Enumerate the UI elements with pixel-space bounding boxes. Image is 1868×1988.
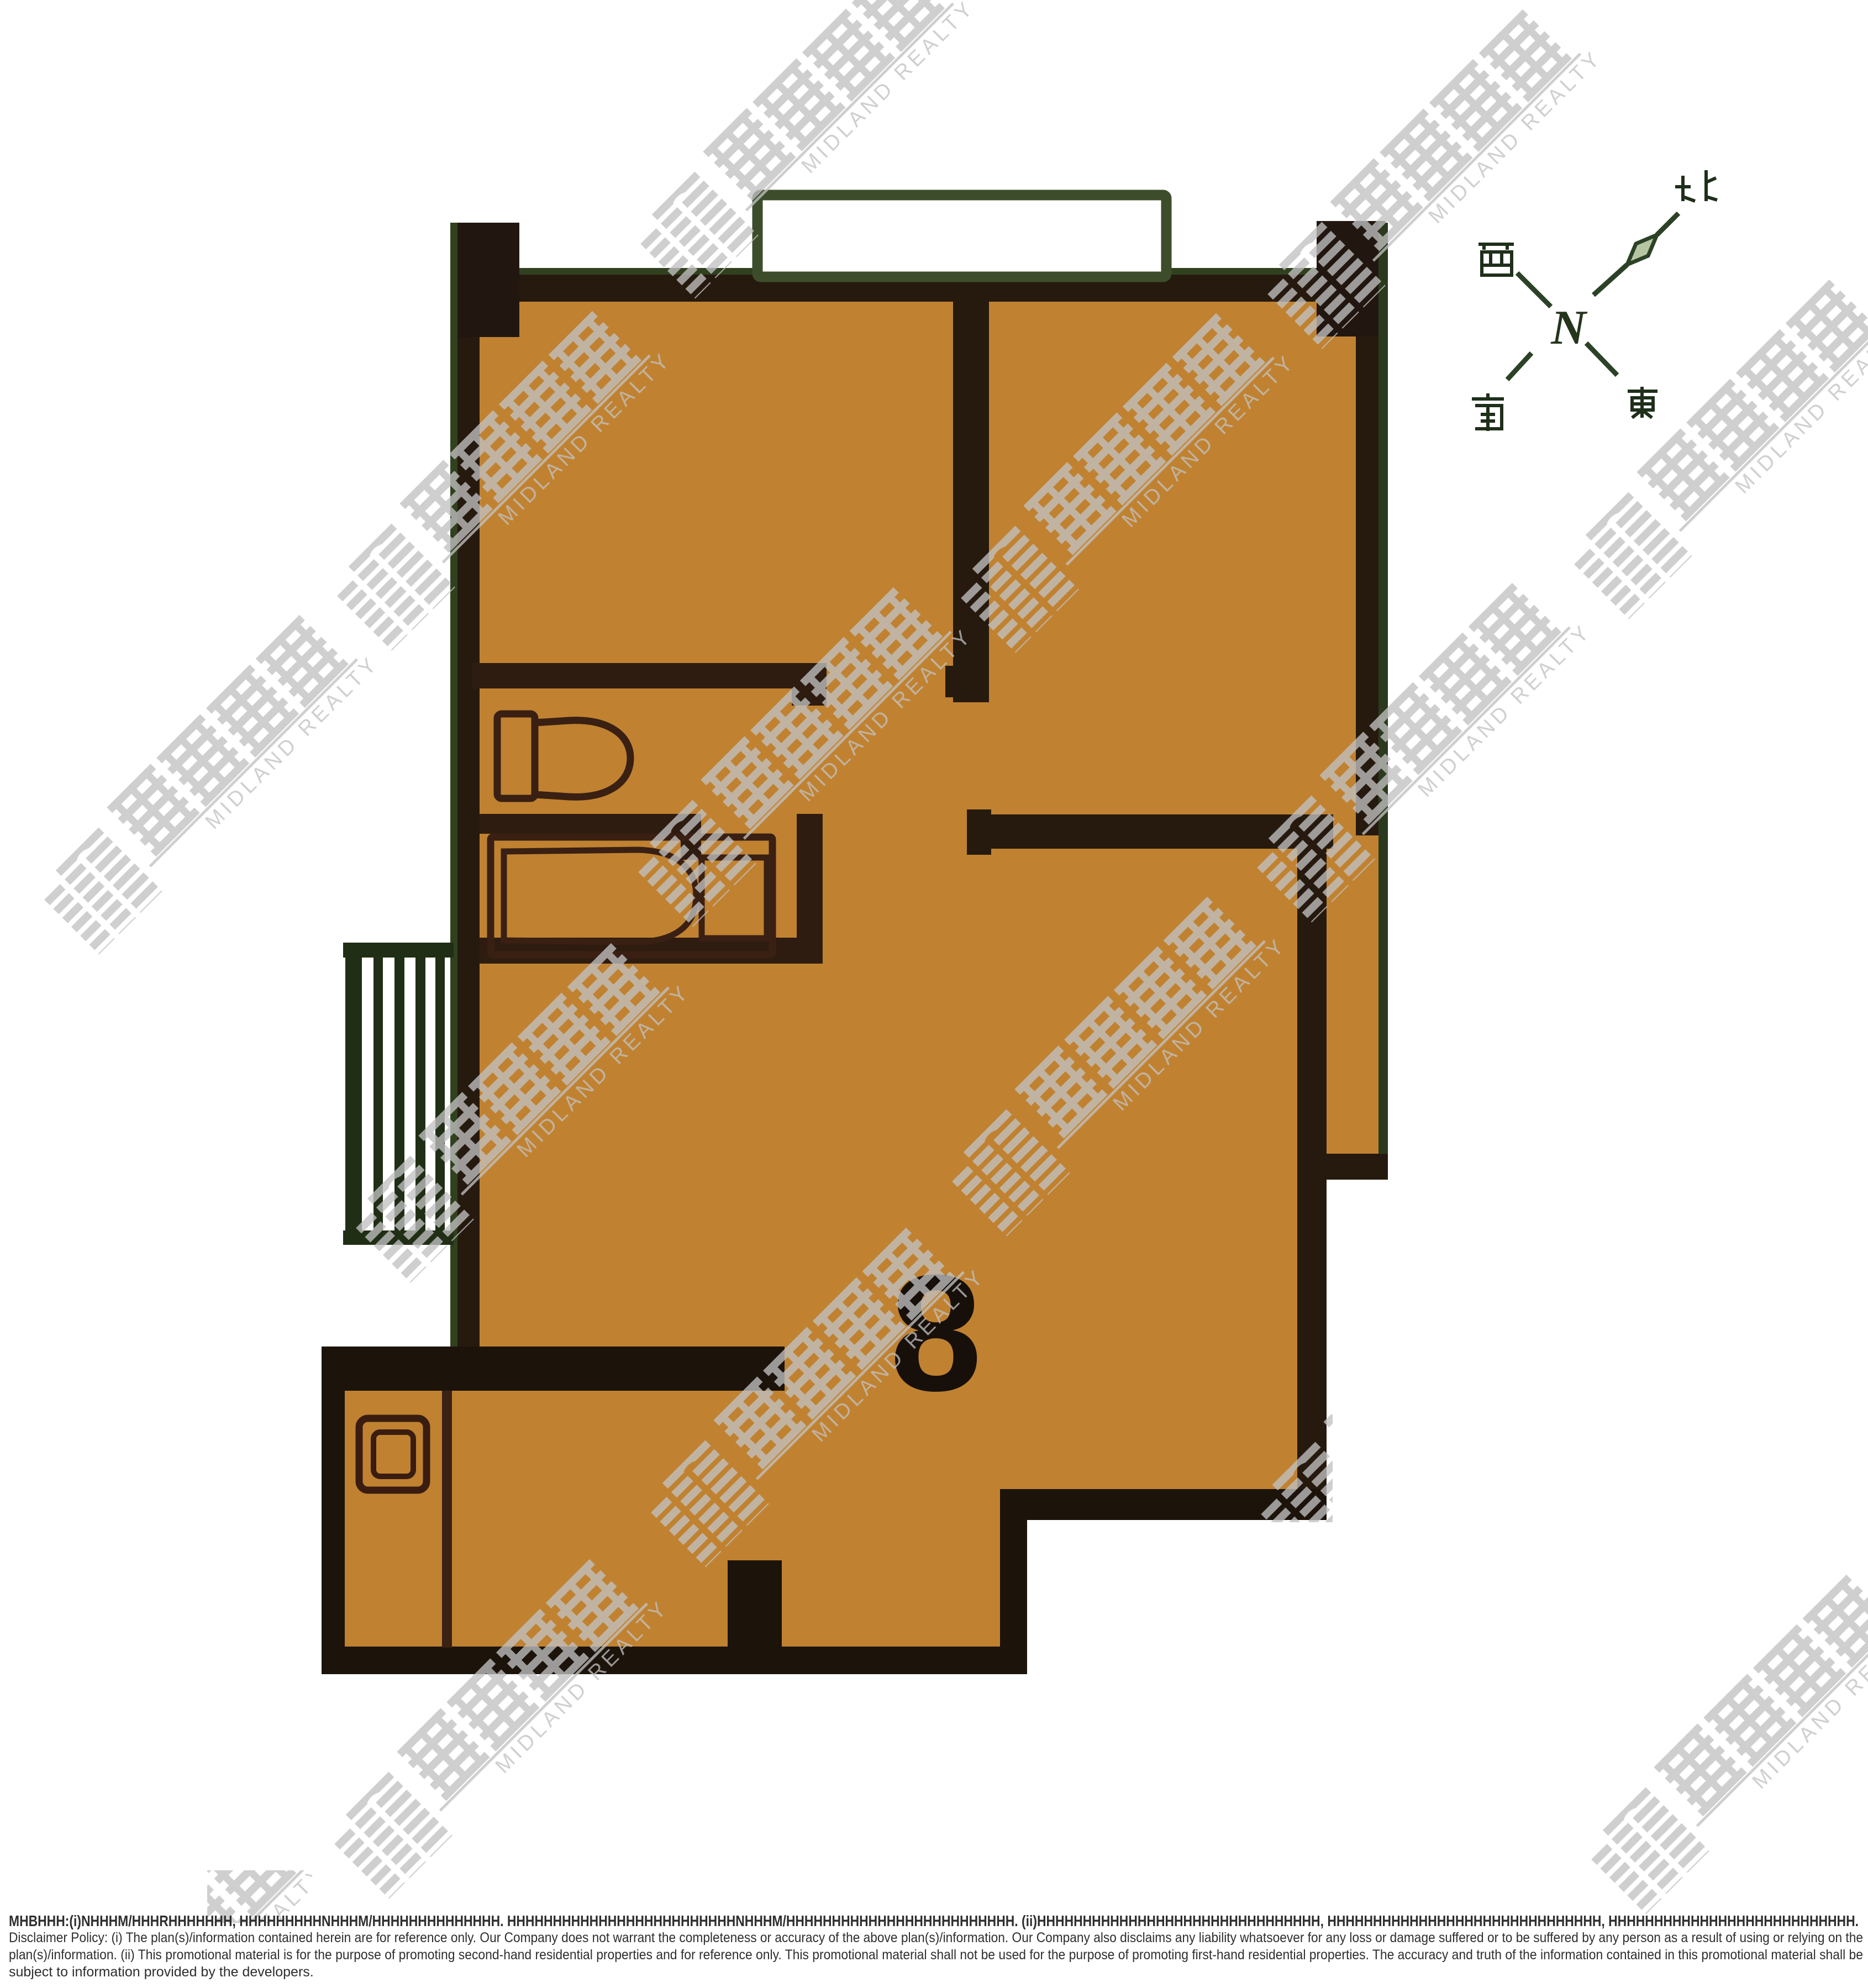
- svg-text:N: N: [1550, 301, 1588, 355]
- svg-text:MHBHHH:(i)NHHHM/HHHRHHHHHHH, H: MHBHHH:(i)NHHHM/HHHRHHHHHHH, HHHHHHHHHNH…: [9, 1912, 1859, 1929]
- svg-text:plan(s)/information. (ii) This: plan(s)/information. (ii) This promotion…: [9, 1947, 1863, 1963]
- svg-text:Disclaimer Policy: (i) The pla: Disclaimer Policy: (i) The plan(s)/infor…: [9, 1930, 1863, 1945]
- svg-text:subject to information provide: subject to information provided by the d…: [9, 1964, 314, 1980]
